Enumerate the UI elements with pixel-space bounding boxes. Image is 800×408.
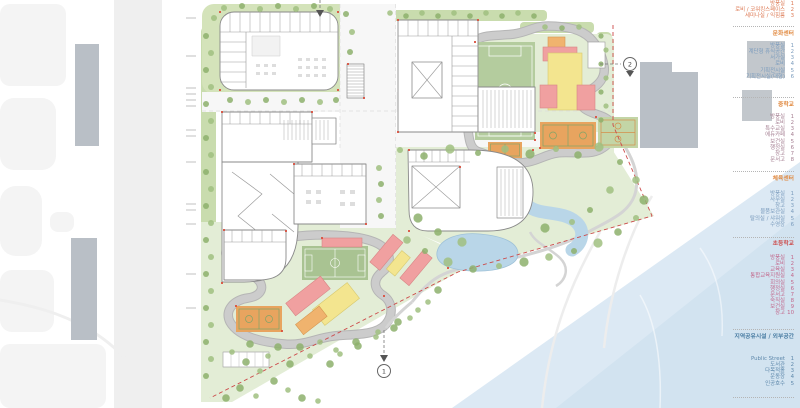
legend-item-label: 보건실	[731, 139, 785, 145]
legend-item-label: 통합교육지원실	[731, 273, 785, 279]
legend-item: 인공호수5	[731, 381, 794, 387]
legend-item-number: 3	[785, 203, 794, 209]
legend-item-number: 2	[785, 197, 794, 203]
basketball-court-southwest	[236, 306, 282, 332]
legend-item-number: 7	[785, 151, 794, 157]
legend-item-label: 기획전시실(대형)	[731, 74, 785, 80]
legend-item-label: 기획전시실	[731, 68, 785, 74]
legend-item-number: 2	[785, 7, 794, 13]
legend-item-label: 에듀카페	[731, 132, 785, 138]
legend-item-number: 1	[785, 43, 794, 49]
legend-item-label: 문서고	[731, 292, 785, 298]
legend-item-label: 창고	[731, 151, 785, 157]
legend-item: 기획전시실(대형)6	[731, 74, 794, 80]
legend-item: 통합교육지원실4	[731, 273, 794, 279]
legend-item-label: 행정실	[731, 145, 785, 151]
legend-separator	[733, 171, 794, 172]
legend-item: 행정실6	[731, 145, 794, 151]
legend-section-header-culture-center: 문화센터	[773, 31, 794, 37]
legend-item: 수영장6	[731, 222, 794, 228]
building-west-wing	[222, 112, 312, 162]
legend-item-number: 9	[785, 304, 794, 310]
legend-item: 창고10	[731, 310, 794, 316]
legend-item: 회의실5	[731, 280, 794, 286]
legend-item-label: 물품보관실	[731, 209, 785, 215]
legend-item-number: 4	[785, 374, 794, 380]
legend-separator	[733, 237, 794, 238]
legend-item: 문서고7	[731, 292, 794, 298]
legend-separator	[733, 397, 794, 398]
section-marker-1: 1	[378, 330, 391, 378]
neighbor-building	[75, 44, 99, 146]
legend-item-number: 1	[785, 1, 794, 7]
marker-label: 1	[382, 368, 386, 376]
legend-section-header-sports-center: 체육센터	[773, 176, 794, 182]
basketball-court-east	[540, 122, 596, 149]
legend-item: 세미나실 / 익힘룸3	[731, 13, 794, 19]
court-east-2	[598, 117, 638, 148]
legend-item-number: 10	[785, 310, 794, 316]
arrow-down-icon	[626, 71, 634, 77]
legend-item-number: 3	[785, 368, 794, 374]
legend-item-number: 3	[785, 55, 794, 61]
legend-item-number: 4	[785, 273, 794, 279]
legend-item-number: 3	[785, 126, 794, 132]
legend-item-number: 6	[785, 145, 794, 151]
legend-item-number: 8	[785, 157, 794, 163]
legend-item-number: 1	[785, 356, 794, 362]
legend-item-label: 로비	[731, 61, 785, 67]
legend-item-label: 수영장	[731, 222, 785, 228]
legend-item: 보건실5	[731, 139, 794, 145]
legend-section-header-middle-school: 중학교	[778, 102, 794, 108]
legend-item-label: 운동장	[731, 374, 785, 380]
legend-item-number: 1	[785, 114, 794, 120]
neighbor-building	[71, 238, 97, 340]
legend: 방풍실1로비 / 코워킹스페이스2세미나실 / 익힘룸3문화센터방풍실1계단형 …	[731, 0, 795, 408]
legend-item: 에듀카페4	[731, 132, 794, 138]
legend-item: 로비4	[731, 61, 794, 67]
legend-item-number: 2	[785, 120, 794, 126]
site-plan-canvas: 2 1 방풍실1로비 / 코워킹스페이스2세미나실 / 익힘룸3문화센터방풍실1…	[0, 0, 800, 408]
legend-item-number: 2	[785, 49, 794, 55]
legend-item: 기획전시실5	[731, 68, 794, 74]
marker-label: 2	[628, 61, 632, 69]
legend-section-header-community: 지역공유시설 / 외부공간	[735, 334, 795, 340]
legend-separator	[733, 329, 794, 330]
legend-item-number: 5	[785, 139, 794, 145]
legend-item-number: 7	[785, 292, 794, 298]
legend-item-label: 창고	[731, 310, 785, 316]
neighbor-building-large	[640, 62, 698, 148]
legend-item-number: 6	[785, 286, 794, 292]
legend-item-label: 인공호수	[731, 381, 785, 387]
tree-strip-north	[385, 10, 547, 21]
site-plan-drawing: 2 1	[0, 0, 800, 408]
legend-item-number: 5	[785, 280, 794, 286]
legend-item-number: 5	[785, 68, 794, 74]
legend-item-number: 6	[785, 222, 794, 228]
building-auditorium	[478, 87, 535, 132]
legend-separator	[733, 97, 794, 98]
legend-item-number: 4	[785, 209, 794, 215]
legend-item: 창고7	[731, 151, 794, 157]
legend-item-number: 5	[785, 381, 794, 387]
legend-section-header-elementary-school: 초등학교	[773, 241, 794, 247]
legend-item-number: 1	[785, 255, 794, 261]
legend-item-label: 회의실	[731, 280, 785, 286]
legend-item-number: 1	[785, 191, 794, 197]
legend-item-label: 행정실	[731, 286, 785, 292]
legend-item: 운동장4	[731, 374, 794, 380]
legend-item: 탈의실 / 샤워실5	[731, 216, 794, 222]
legend-item: 행정실6	[731, 286, 794, 292]
road-band	[114, 0, 162, 408]
legend-item-number: 2	[785, 362, 794, 368]
legend-item-number: 3	[785, 267, 794, 273]
legend-item: 물품보관실4	[731, 209, 794, 215]
lower-soccer-pitch	[302, 246, 368, 280]
arrow-down-icon	[380, 355, 388, 362]
legend-item-number: 2	[785, 261, 794, 267]
legend-item-number: 4	[785, 61, 794, 67]
legend-item-number: 8	[785, 298, 794, 304]
legend-item-label: 세미나실 / 익힘룸	[731, 13, 785, 19]
legend-item-label: 문서고	[731, 157, 785, 163]
parking-ticks	[186, 18, 196, 308]
legend-item-number: 3	[785, 13, 794, 19]
legend-item-number: 4	[785, 132, 794, 138]
legend-item: 문서고8	[731, 157, 794, 163]
legend-item-label: 탈의실 / 샤워실	[731, 216, 785, 222]
building-lower-rooms	[224, 230, 286, 280]
legend-separator	[733, 26, 794, 27]
legend-item-number: 6	[785, 74, 794, 80]
building-central-block	[294, 164, 366, 224]
legend-item-number: 5	[785, 216, 794, 222]
background-blocks	[0, 0, 162, 408]
